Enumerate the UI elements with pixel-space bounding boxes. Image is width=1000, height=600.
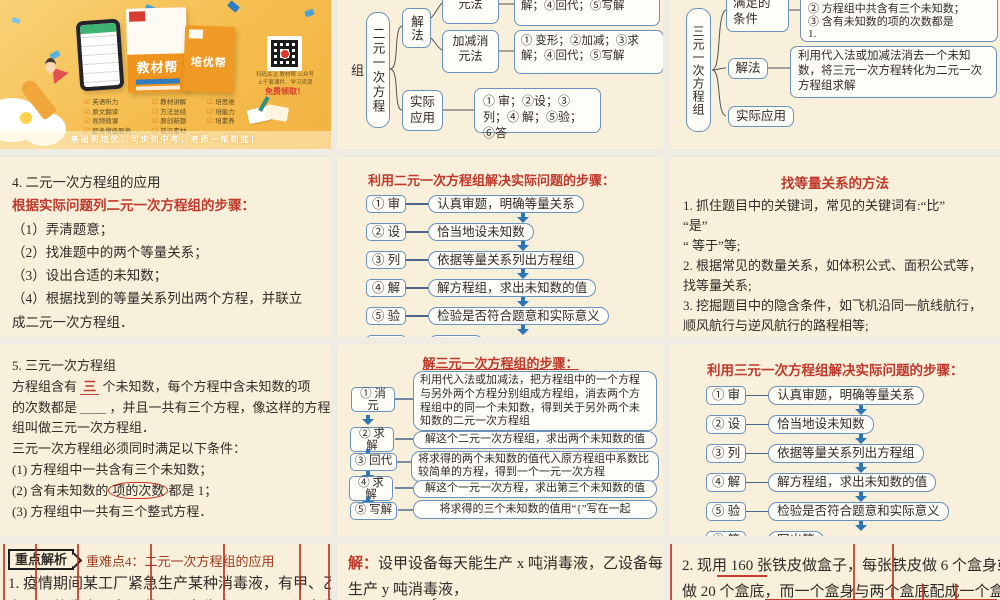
step-box: ⑤ 写解 (350, 502, 397, 520)
mindmap-root-node: 二元一次方程 (366, 12, 390, 128)
list-item: ☑教材讲解 (152, 98, 186, 108)
solution-line: 解：设甲设备每天能生产 x 吨消毒液，乙设备每天能 (348, 552, 663, 573)
book-peiyoubang: 培优帮 (183, 25, 235, 93)
method-line: 找等量关系; (683, 276, 1000, 296)
underlined-phrase: 而一个盒身与两个盒底配成一个盒子， (780, 584, 1000, 600)
down-arrow-icon (722, 492, 1000, 502)
mindmap-3var-page[interactable]: 三元一次方程组 满足的条件 ② 方程组中共含有三个未知数； ③ 含有未知数的项的… (670, 0, 1000, 149)
flow-link (746, 395, 768, 397)
problem-line: 套不同的生产设备．若甲设备生产 1 天，乙设备生 (8, 596, 331, 600)
checkbox-icon: ☑ (207, 118, 213, 125)
flow-row: ③ 列依据等量关系列出方程组 (706, 444, 1000, 463)
flow-link (406, 315, 428, 317)
key-analysis-badge: 重点解析 (8, 549, 74, 570)
step-line: （2）找准题中的两个等量关系； (12, 241, 331, 264)
red-annotation-line (922, 584, 924, 600)
blank-answer-san: 三 (80, 379, 99, 395)
flow-row: ⑤ 验检验是否符合题意和实际意义 (366, 307, 663, 325)
book-logo-badge (129, 11, 145, 21)
definition-line: 的次数都是 ＿＿ ，并且一共有三个方程，像这样的方程 (12, 398, 331, 419)
list-item: ☑原文翻译 (84, 108, 131, 118)
root-overflow-char: 组 (351, 60, 364, 79)
flowchart-title: 利用三元一次方程组解决实际问题的步骤： (670, 345, 1000, 386)
flow-link (746, 482, 768, 484)
list-item-label: 培能力 (215, 109, 235, 116)
step-box: ⑥ 答 (366, 335, 406, 337)
flow-link (406, 287, 428, 289)
book-title: 培优帮 (184, 53, 235, 71)
flow-link (746, 424, 768, 426)
step-line: 成二元一次方程组． (12, 311, 331, 334)
flow-row: ③ 列依据等量关系列出方程组 (366, 251, 663, 269)
desc-box: 依据等量关系列出方程组 (768, 444, 924, 463)
root-label: 三元一次方程组 (690, 25, 707, 116)
book-cover-band: 教材帮 (127, 53, 188, 93)
list-item-label: 视频微课 (92, 118, 118, 125)
red-annotation-line (223, 544, 225, 600)
definition-line: 方程组含有 三 个未知数，每个方程中含未知数的项 (12, 377, 331, 398)
text-part: 设甲设备每天能生产 x 吨消毒液，乙设备每天能 (378, 556, 663, 572)
solution-label: 解： (348, 556, 378, 572)
step-line: （1）弄清题意； (12, 218, 331, 241)
flow-link (406, 203, 428, 205)
red-annotation-line (853, 544, 855, 600)
method-line: “ 等于”等; (683, 236, 1000, 256)
condition-line: (1) 方程组中一共含有三个未知数； (12, 460, 331, 481)
red-annotation-line (77, 544, 79, 600)
list-item-label: 原创新题 (160, 118, 186, 125)
confetti-shape (11, 17, 20, 24)
flow-row: ⑥ 答写出答 (706, 531, 1000, 536)
conditions-label-node: 满足的条件 (726, 0, 789, 32)
text-part: (2) 含有未知数的 (12, 483, 108, 498)
problem-line: 做 20 个盒底，而一个盒身与两个盒底配成一个盒子， (682, 580, 1000, 600)
qr-center-dot (280, 49, 290, 59)
down-arrow-icon (362, 415, 374, 425)
condition-line: (2) 含有未知数的项的次数都是 1； (12, 481, 331, 502)
methods-page[interactable]: 找等量关系的方法 1. 抓住题目中的关键词，常见的关键词有:“比” “是” “ … (670, 157, 1000, 337)
down-arrow-icon (382, 297, 663, 307)
list-item-label: 培思维 (215, 99, 235, 106)
checkbox-icon: ☑ (152, 118, 158, 125)
text-part: 都是 1； (168, 483, 217, 498)
problem-line: 2. 现用 160 张铁皮做盒子，每张铁皮做 6 个盒身或 (682, 554, 1000, 575)
down-arrow-icon (382, 213, 663, 223)
flow-row: ① 审认真审题，明确等量关系 (706, 386, 1000, 405)
rocket-flame (20, 112, 32, 124)
flow-link (746, 511, 768, 513)
list-item: ☑方法总结 (152, 108, 186, 118)
flowchart-title: 利用二元一次方程组解决实际问题的步骤： (338, 157, 663, 195)
qr-code-icon (267, 36, 302, 71)
text-part: 个未知数，每个方程中含未知数的项 (99, 379, 310, 394)
flow-row: ⑤ 验检验是否符合题意和实际意义 (706, 502, 1000, 521)
red-underline (717, 575, 767, 577)
flow-row: ④ 解解方程组，求出未知数的值 (366, 279, 663, 297)
text-part: 方程组含有 (12, 379, 80, 394)
step-box: ⑤ 验 (706, 502, 746, 521)
method-line: 1. 抓住题目中的关键词，常见的关键词有:“比” (683, 196, 1000, 216)
step-box: ④ 解 (706, 473, 746, 492)
confetti-shape (227, 0, 240, 12)
book-subtitle-bar (136, 78, 180, 84)
conditions-text-node: ② 方程组中共含有三个未知数； ③ 含有未知数的项的次数都是 1. (800, 0, 998, 42)
step-box: ① 审 (706, 386, 746, 405)
checkbox-icon: ☑ (152, 99, 158, 106)
list-item-label: 英语听力 (92, 99, 118, 106)
slogan-strip: 基础到培优，同步到中考，老师一帮到底！ (0, 131, 331, 149)
solve-text-node: 利用代入法或加减法消去一个未知数，将三元一次方程转化为二元一次方程组求解 (790, 46, 997, 98)
red-annotation-line (299, 544, 301, 600)
desc-box: 检验是否符合题意和实际意义 (768, 502, 949, 521)
method-elimination-node: 加减消元法 (442, 30, 499, 73)
method-line: 4. 借助列表格、画线段示意图等方法找等量关系 (683, 336, 1000, 337)
elimination-steps-node: ① 变形；②加减；③求解；④回代；⑤写解 (514, 30, 663, 74)
desc-box: 写出答 (768, 531, 824, 536)
brace-glyph: { (428, 594, 439, 600)
list-item: ☑视频微课 (84, 117, 131, 127)
red-annotation-line (955, 584, 957, 600)
phone-screen (80, 23, 120, 87)
checkbox-icon: ☑ (207, 109, 213, 116)
method-line: 顺风航行与逆风航行的路程相等; (683, 316, 1000, 336)
text-part: 张铁皮做盒子，每张铁皮做 6 个盒身或 (757, 558, 1000, 574)
flow-row: ② 设恰当地设未知数 (706, 415, 1000, 434)
book-title: 教材帮 (127, 56, 187, 77)
step-box: ④ 解 (366, 279, 406, 297)
method-substitution-node: 代入消元法 (442, 0, 499, 24)
desc-box: 将求得的三个未知数的值用“{”写在一起 (413, 500, 657, 519)
desc-box: 认真审题，明确等量关系 (768, 386, 924, 405)
flow-row: ④ 解解方程组，求出未知数的值 (706, 473, 1000, 492)
down-arrow-icon (382, 241, 663, 251)
definition-line: 组叫做三元一次方程组． (12, 418, 331, 439)
desc-box: 解这个一元一次方程，求出第三个未知数的值 (413, 480, 657, 498)
step-box: ① 消元 (351, 387, 395, 412)
down-arrow-icon (722, 463, 1000, 473)
text-part: 2. 现用 (682, 558, 727, 574)
branch-label: 解法 (407, 15, 426, 42)
flow-link (406, 259, 428, 261)
phone-illustration (76, 19, 125, 92)
condition-line: (3) 方程组中一共有三个整式方程． (12, 502, 331, 523)
flow-row: ① 审认真审题，明确等量关系 (366, 195, 663, 213)
branch-apply-node: 实际应用 (402, 90, 443, 131)
flow-row: ② 设恰当地设未知数 (366, 223, 663, 241)
red-circle-annotation: 项的次数 (108, 482, 168, 499)
red-annotation-line (670, 544, 672, 600)
down-arrow-icon (722, 434, 1000, 444)
book-subtitle-bar2 (136, 85, 180, 90)
down-arrow-icon (382, 325, 663, 335)
desc-box: 写出答 (428, 335, 484, 337)
section4-page[interactable]: 4. 二元一次方程组的应用 根据实际问题列二元一次方程组的步骤： （1）弄清题意… (0, 157, 331, 337)
badge-label: 重点解析 (8, 549, 74, 570)
list-item-label: 原文翻译 (92, 109, 118, 116)
checkbox-icon: ☑ (84, 99, 90, 106)
red-annotation-line (328, 544, 330, 600)
list-item: ☑培素养 (207, 117, 235, 127)
list-item-label: 教材讲解 (160, 99, 186, 106)
root-label: 二元一次方程 (369, 27, 388, 114)
list-item: ☑培思维 (207, 98, 235, 108)
down-arrow-icon (722, 405, 1000, 415)
example2-page[interactable]: 2. 现用 160 张铁皮做盒子，每张铁皮做 6 个盒身或 做 20 个盒底，而… (670, 544, 1000, 600)
step-box: ① 审 (366, 195, 406, 213)
difficulty-heading: 重难点4：二元一次方程组的应用 (86, 551, 275, 570)
step-box: ③ 列 (366, 251, 406, 269)
rider-figure (45, 58, 56, 73)
method-line: 2. 根据常见的数量关系，如体积公式、面积公式等， (683, 256, 1000, 276)
text-part: 做 20 个盒底， (682, 584, 780, 600)
solution-page[interactable]: 解：设甲设备每天能生产 x 吨消毒液，乙设备每天能 生产 y 吨消毒液， {x＋… (338, 544, 663, 600)
method-line: 3. 挖掘题目中的隐含条件，如飞机沿同一航线航行， (683, 296, 1000, 316)
slogan-text: 基础到培优，同步到中考，老师一帮到底！ (0, 131, 331, 149)
list-item-label: 培素养 (215, 118, 235, 125)
checkbox-icon: ☑ (152, 109, 158, 116)
confetti-shape (304, 9, 315, 18)
checkbox-icon: ☑ (207, 99, 213, 106)
study-guide-page-grid: { "cover": { "book1_title": "教材帮", "book… (0, 0, 1000, 600)
flowchart-3var-app-page[interactable]: 利用三元一次方程组解决实际问题的步骤： ① 审认真审题，明确等量关系 ② 设恰当… (670, 345, 1000, 536)
flowchart-title: 解三元一次方程组的步骤： (338, 353, 663, 372)
checkbox-icon: ☑ (84, 109, 90, 116)
condition-line: ② 方程组中共含有三个未知数； (808, 3, 990, 16)
desc-box: 解这个二元一次方程组，求出两个未知数的值 (413, 431, 657, 449)
book-tag (189, 29, 203, 38)
underlined-number: 160 (727, 558, 757, 574)
list-item-label: 方法总结 (160, 109, 186, 116)
qr-caption-line1: 扫码关注 教材帮 公众号 (245, 70, 325, 78)
mindmap-root-node: 三元一次方程组 (686, 8, 711, 132)
red-annotation-line (35, 544, 37, 600)
cover-ad-page[interactable]: 教材帮 培优帮 扫码关注 教材帮 公众号 上千套课件、学习资源 免费领取！ ☑英… (0, 0, 331, 149)
desc-box: 认真审题，明确等量关系 (428, 195, 584, 213)
desc-box: 利用代入法或加减法，把方程组中的一个方程与另外两个方程分别组成方程组，消去两个方… (413, 371, 657, 431)
book-jiaocaibang: 教材帮 (126, 7, 188, 93)
conditions-intro: 三元一次方程组必须同时满足以下条件： (12, 439, 331, 460)
solve-label-node: 解法 (728, 58, 768, 79)
mindmap-2var-page[interactable]: 组 二元一次方程 解法 代入消元法 ① 变形；②代入；③求解；④回代；⑤写解 加… (338, 0, 663, 149)
apply-label-node: 实际应用 (728, 106, 794, 127)
down-arrow-icon (382, 269, 663, 279)
qr-caption-line2: 上千套课件、学习资源 (245, 78, 325, 86)
step-box: ⑤ 验 (366, 307, 406, 325)
qr-free-claim-text: 免费领取！ (245, 86, 325, 97)
step-box: ⑥ 答 (706, 531, 746, 536)
step-box: ③ 列 (706, 444, 746, 463)
flow-row: ⑥ 答写出答 (366, 335, 663, 337)
method-line: “是” (683, 216, 1000, 236)
example1-page[interactable]: 重点解析 重难点4：二元一次方程组的应用 1. 疫情期间某工厂紧急生产某种消毒液… (0, 544, 331, 600)
section5-page[interactable]: 5. 三元一次方程组 方程组含有 三 个未知数，每个方程中含未知数的项 的次数都… (0, 345, 331, 536)
step-box: ② 设 (706, 415, 746, 434)
section-title: 5. 三元一次方程组 (12, 356, 331, 377)
list-item: ☑原创新题 (152, 117, 186, 127)
red-annotation-line (3, 544, 5, 600)
flowchart-solve3var-page[interactable]: 解三元一次方程组的步骤： 利用代入法或加减法，把方程组中的一个方程与另外两个方程… (338, 345, 663, 536)
desc-box: 解方程组，求出未知数的值 (768, 473, 936, 492)
methods-title: 找等量关系的方法 (670, 157, 1000, 192)
checkbox-icon: ☑ (84, 118, 90, 125)
phone-app-list (81, 32, 121, 87)
step-box: ② 设 (366, 223, 406, 241)
section-title: 4. 二元一次方程组的应用 (12, 171, 331, 194)
apply-steps-node: ① 审；②设；③列；④ 解；⑤验；⑥答 (474, 88, 601, 133)
section-subtitle: 根据实际问题列二元一次方程组的步骤： (12, 194, 331, 217)
list-item: ☑英语听力 (84, 98, 131, 108)
book2-feature-list: ☑培思维 ☑培能力 ☑培素养 (207, 98, 235, 127)
desc-box: 解方程组，求出未知数的值 (428, 279, 596, 297)
desc-box: 依据等量关系列出方程组 (428, 251, 584, 269)
step-box: ③ 回代 (350, 453, 397, 471)
red-annotation-line (892, 544, 894, 600)
list-item: ☑培能力 (207, 108, 235, 118)
condition-line: 1. (808, 28, 990, 41)
flowchart-2var-page[interactable]: 利用二元一次方程组解决实际问题的步骤： ① 审认真审题，明确等量关系 ② 设恰当… (338, 157, 663, 337)
down-arrow-icon (722, 521, 1000, 531)
flow-link (406, 231, 428, 233)
problem-line: 1. 疫情期间某工厂紧急生产某种消毒液，有甲、乙两 (8, 572, 331, 593)
condition-line: ③ 含有未知数的项的次数都是 (808, 16, 990, 29)
step-line: （3）设出合适的未知数； (12, 264, 331, 287)
desc-box: 检验是否符合题意和实际意义 (428, 307, 609, 325)
flow-link (746, 453, 768, 455)
step-line: （4）根据找到的等量关系列出两个方程，并联立 (12, 287, 331, 310)
branch-solve-node: 解法 (402, 8, 431, 48)
desc-box: 恰当地设未知数 (768, 415, 874, 434)
desc-box: 将求得的两个未知数的值代入原方程组中系数比较简单的方程，得到一个一元一次方程 (411, 451, 659, 482)
equation-line: {x＋6y＝2 000 (428, 594, 523, 600)
desc-box: 恰当地设未知数 (428, 223, 534, 241)
red-annotation-line (150, 544, 152, 600)
substitution-steps-node: ① 变形；②代入；③求解；④回代；⑤写解 (514, 0, 660, 26)
